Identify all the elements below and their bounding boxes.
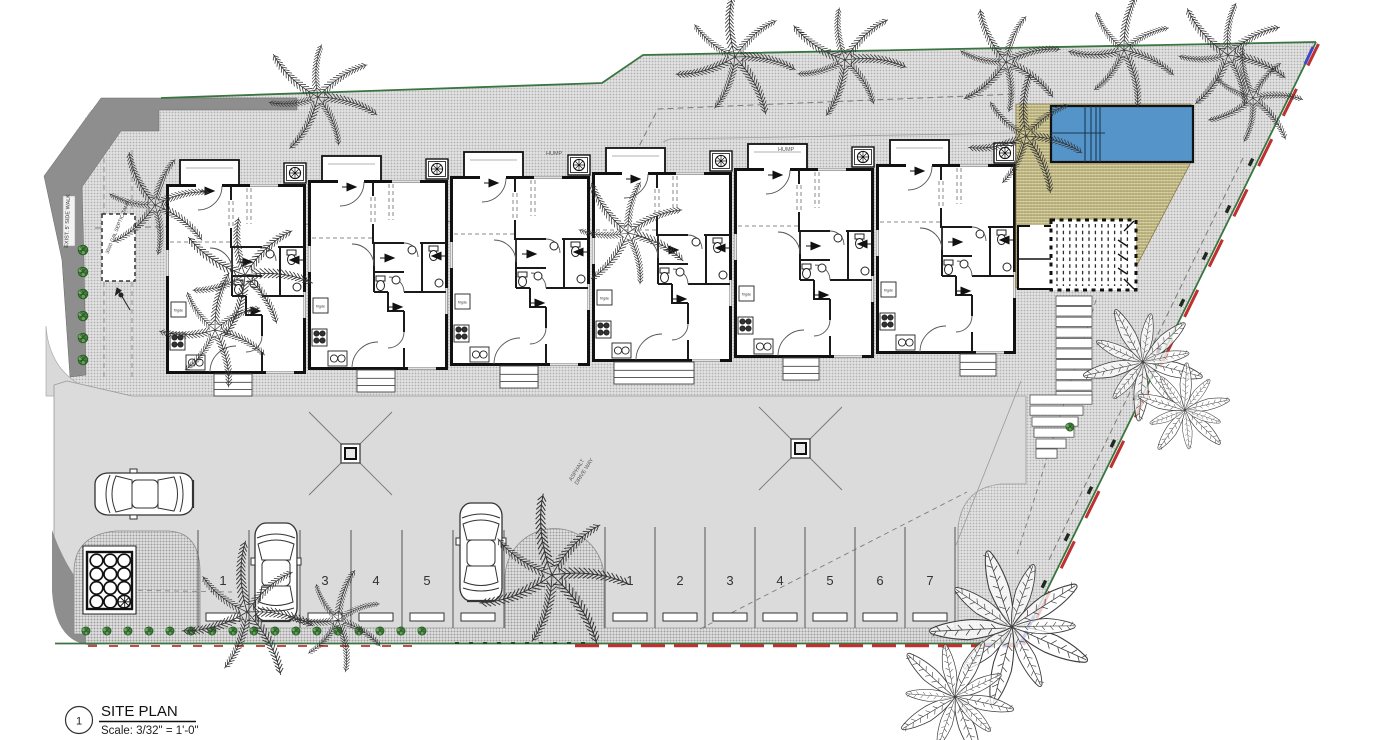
svg-text:3: 3 — [321, 573, 328, 588]
svg-text:5: 5 — [826, 573, 833, 588]
svg-text:6: 6 — [876, 573, 883, 588]
svg-text:4: 4 — [776, 573, 783, 588]
svg-text:7: 7 — [926, 573, 933, 588]
svg-text:HUMP: HUMP — [546, 151, 563, 157]
svg-text:4: 4 — [372, 573, 379, 588]
svg-text:1: 1 — [219, 573, 226, 588]
svg-text:Scale: 3/32" = 1'-0": Scale: 3/32" = 1'-0" — [101, 725, 199, 737]
svg-text:2: 2 — [676, 573, 683, 588]
svg-text:5: 5 — [423, 573, 430, 588]
svg-text:SITE PLAN: SITE PLAN — [101, 703, 178, 720]
svg-text:HUMP: HUMP — [778, 147, 795, 153]
svg-text:3: 3 — [726, 573, 733, 588]
svg-text:1: 1 — [76, 716, 82, 728]
svg-text:1: 1 — [626, 573, 633, 588]
